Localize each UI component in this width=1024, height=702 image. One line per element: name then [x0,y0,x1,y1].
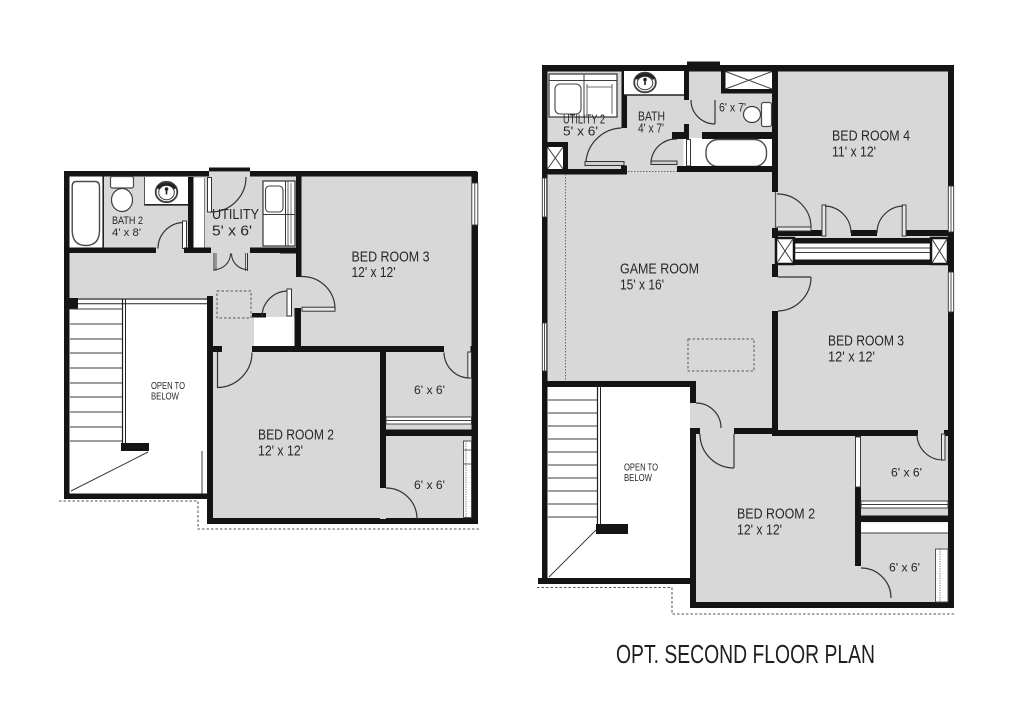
svg-text:12' x 12': 12' x 12' [352,265,396,281]
svg-text:BED ROOM 3: BED ROOM 3 [828,334,904,350]
svg-text:BELOW: BELOW [624,472,652,484]
svg-text:GAME ROOM: GAME ROOM [620,262,699,278]
svg-text:OPT. SECOND FLOOR PLAN: OPT. SECOND FLOOR PLAN [616,639,875,669]
svg-text:BATH 2: BATH 2 [112,215,143,227]
svg-text:6' x 6': 6' x 6' [414,478,445,492]
svg-text:6' x 7': 6' x 7' [719,103,746,115]
svg-text:5' x 6': 5' x 6' [212,224,252,240]
svg-text:11' x 12': 11' x 12' [832,145,876,161]
svg-text:12' x 12': 12' x 12' [737,523,782,539]
svg-text:BED ROOM 2: BED ROOM 2 [258,428,334,444]
svg-text:BED ROOM 4: BED ROOM 4 [832,129,910,145]
svg-text:BELOW: BELOW [151,391,179,403]
svg-text:BED ROOM 2: BED ROOM 2 [737,507,815,523]
svg-text:12' x 12': 12' x 12' [258,444,303,460]
svg-text:4' x 7': 4' x 7' [638,122,664,136]
svg-text:6' x 6': 6' x 6' [889,561,920,575]
svg-text:UTILITY: UTILITY [212,207,259,223]
svg-text:4' x 8': 4' x 8' [112,227,141,239]
svg-text:BED ROOM 3: BED ROOM 3 [352,250,430,266]
svg-text:5' x 6': 5' x 6' [563,125,598,139]
svg-text:6' x 6': 6' x 6' [891,466,922,480]
svg-text:15' x 16': 15' x 16' [620,278,664,294]
svg-text:6' x 6': 6' x 6' [414,383,445,397]
svg-text:12' x 12': 12' x 12' [828,350,875,366]
